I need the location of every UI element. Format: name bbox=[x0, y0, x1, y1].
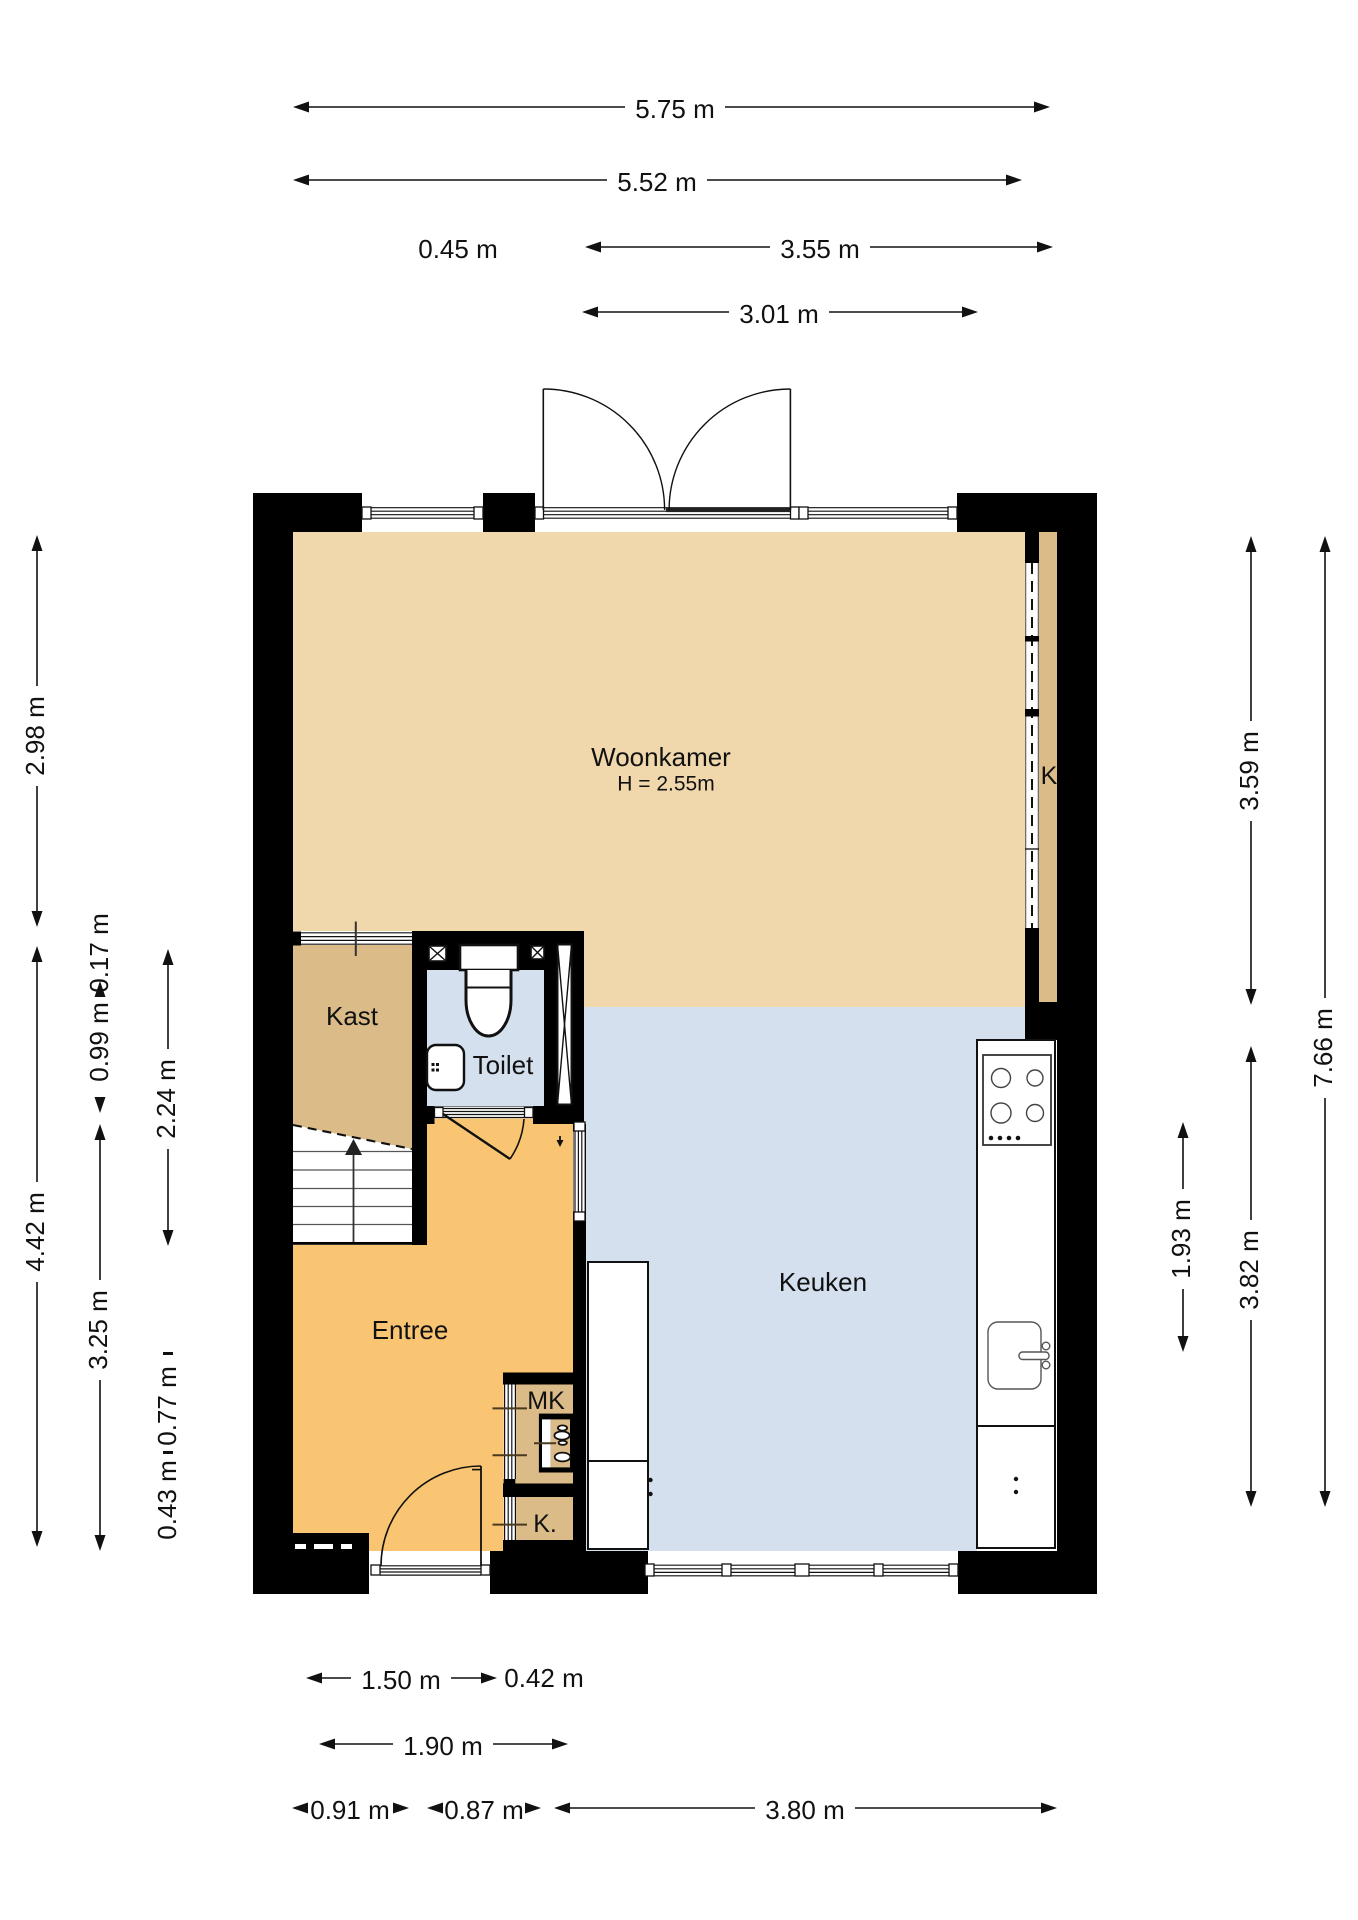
svg-text:Toilet: Toilet bbox=[473, 1050, 534, 1080]
svg-text:K: K bbox=[1041, 762, 1058, 790]
svg-text:4.42 m: 4.42 m bbox=[20, 1192, 50, 1272]
svg-text:7.66 m: 7.66 m bbox=[1308, 1008, 1338, 1088]
svg-text:3.25 m: 3.25 m bbox=[83, 1290, 113, 1370]
svg-text:Kast: Kast bbox=[326, 1001, 379, 1031]
svg-text:2.98 m: 2.98 m bbox=[20, 696, 50, 776]
svg-text:0.17 m: 0.17 m bbox=[84, 913, 114, 993]
svg-text:1.93 m: 1.93 m bbox=[1166, 1199, 1196, 1279]
svg-text:3.01 m: 3.01 m bbox=[739, 299, 819, 329]
svg-text:1.50 m: 1.50 m bbox=[361, 1665, 441, 1695]
svg-text:H = 2.55m: H = 2.55m bbox=[617, 773, 714, 796]
svg-text:0.87 m: 0.87 m bbox=[444, 1795, 524, 1825]
svg-text:1.90 m: 1.90 m bbox=[403, 1731, 483, 1761]
svg-text:0.45 m: 0.45 m bbox=[418, 234, 498, 264]
svg-text:0.42 m: 0.42 m bbox=[504, 1663, 584, 1693]
svg-text:Entree: Entree bbox=[372, 1315, 449, 1345]
svg-text:0.99 m: 0.99 m bbox=[84, 1002, 114, 1082]
svg-text:0.43 m: 0.43 m bbox=[152, 1460, 182, 1540]
svg-text:Keuken: Keuken bbox=[779, 1267, 867, 1297]
svg-text:2.24 m: 2.24 m bbox=[151, 1059, 181, 1139]
svg-text:3.82 m: 3.82 m bbox=[1234, 1230, 1264, 1310]
svg-text:3.55 m: 3.55 m bbox=[780, 234, 860, 264]
svg-text:5.75 m: 5.75 m bbox=[635, 94, 715, 124]
svg-text:3.80 m: 3.80 m bbox=[765, 1795, 845, 1825]
svg-text:5.52 m: 5.52 m bbox=[617, 167, 697, 197]
svg-text:Woonkamer: Woonkamer bbox=[591, 742, 731, 772]
svg-text:MK: MK bbox=[527, 1387, 565, 1415]
svg-text:0.91 m: 0.91 m bbox=[310, 1795, 390, 1825]
svg-text:K.: K. bbox=[533, 1510, 557, 1538]
svg-text:3.59 m: 3.59 m bbox=[1234, 731, 1264, 811]
svg-text:0.77 m: 0.77 m bbox=[152, 1366, 182, 1446]
